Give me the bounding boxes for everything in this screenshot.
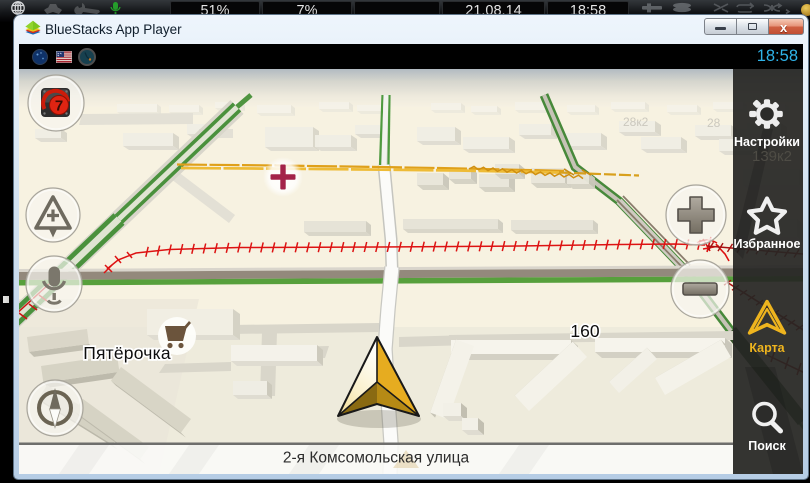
svg-text:Настройки: Настройки xyxy=(734,135,800,149)
svg-text:160: 160 xyxy=(570,321,599,341)
svg-text:139к2: 139к2 xyxy=(752,148,792,165)
svg-text:Пятёрочка: Пятёрочка xyxy=(83,343,171,363)
svg-text:2-я Комсомольская улица: 2-я Комсомольская улица xyxy=(283,450,470,467)
svg-text:28: 28 xyxy=(707,116,721,130)
svg-text:7: 7 xyxy=(55,98,63,115)
svg-text:Избранное: Избранное xyxy=(734,237,801,251)
svg-text:28к2: 28к2 xyxy=(623,115,649,129)
svg-text:Поиск: Поиск xyxy=(748,439,786,453)
svg-text:Карта: Карта xyxy=(749,341,785,355)
